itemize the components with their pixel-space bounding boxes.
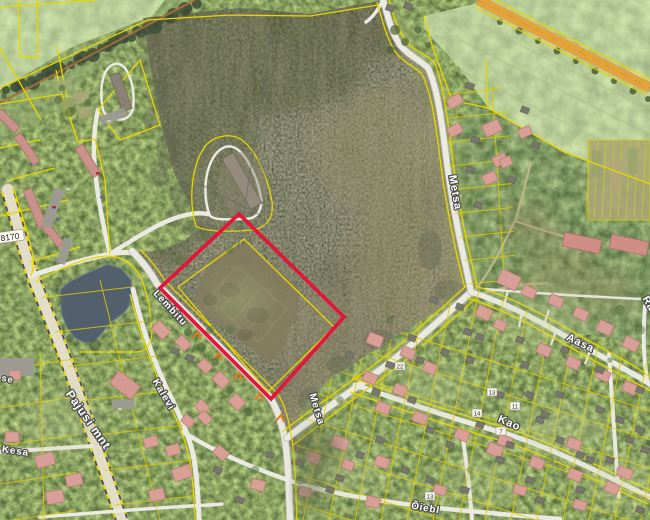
svg-text:11: 11 (512, 404, 519, 411)
svg-text:14: 14 (474, 411, 481, 418)
svg-text:22: 22 (397, 364, 404, 371)
svg-text:13: 13 (427, 494, 434, 501)
svg-text:13: 13 (489, 390, 496, 397)
